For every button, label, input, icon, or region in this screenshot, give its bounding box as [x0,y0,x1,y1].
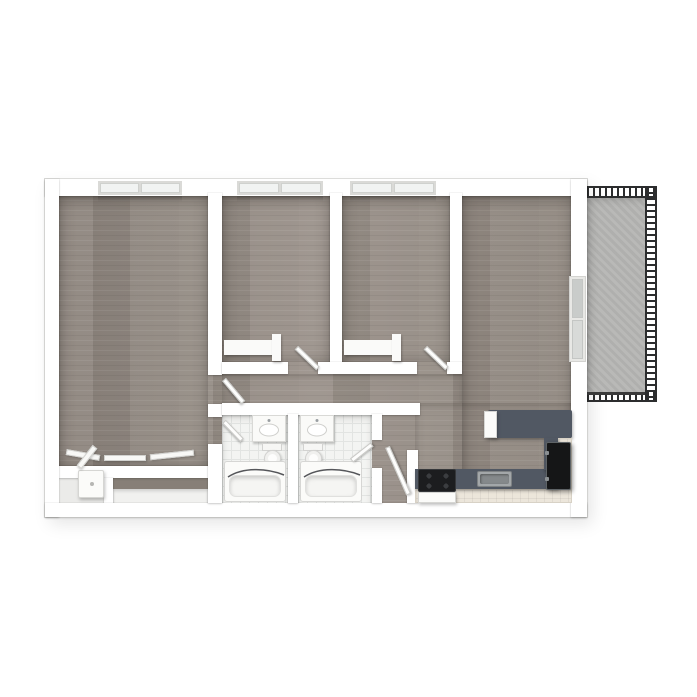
vanity-right [300,415,334,442]
wall-bedrooms-bottom-seg3 [447,362,462,374]
window-pane [141,183,180,193]
wardrobe-door-panel [104,455,146,461]
wall-master-divider-lower [208,444,222,503]
wall-bathroom-right-lower [372,468,382,503]
range [418,469,456,492]
water-heater-valve [90,482,94,486]
window-bedroom-3 [350,181,436,195]
closet-compartment-shelf [113,489,208,503]
wall-left-exterior [45,179,59,517]
refrigerator-hinge [545,451,549,455]
wall-bedroom3-living [450,193,462,362]
window-pane [281,183,321,193]
bathtub-left [224,461,286,502]
closet-shelf-end-panel [272,334,281,361]
vanity-left [252,415,286,442]
closet-shelf-end-panel [392,334,401,361]
floor-plan-render [0,0,697,697]
window-pane [572,279,583,318]
window-pane [352,183,392,193]
wall-master-divider-mid [208,404,222,417]
breakfast-bar-support [484,411,497,438]
balcony-railing-right [645,186,657,402]
sink-basin [259,423,279,436]
wall-bathroom-divider [288,414,298,503]
refrigerator-hinge [545,477,549,481]
window-pane [394,183,434,193]
shower-curtain [301,464,363,480]
wall-bathrooms-top [222,403,420,415]
water-heater [78,470,104,498]
kitchen-sink-basin [480,474,509,484]
breakfast-bar [488,410,572,438]
balcony-floor [587,198,645,395]
range-drawer-front [418,492,456,503]
closet-shelf-bedroom-3 [344,340,398,355]
faucet [268,419,271,422]
kitchen-sink [477,471,512,487]
wall-bedrooms-bottom-seg1 [222,362,288,374]
refrigerator [546,442,571,490]
faucet [316,419,319,422]
closet-divider-wall [104,478,113,503]
bathtub-right [300,461,362,502]
wall-bathroom-right-upper [372,414,382,440]
wall-master-divider-upper [208,193,222,375]
window-living [569,276,586,362]
window-pane [572,320,583,359]
closet-shelf-bedroom-2 [224,340,278,355]
sink-basin [307,423,327,436]
wall-bedroom2-bedroom3 [330,193,342,362]
wall-bottom-exterior [45,503,587,517]
wall-bedrooms-bottom-seg2 [318,362,417,374]
window-pane [239,183,279,193]
window-pane [100,183,139,193]
window-bedroom-2 [237,181,323,195]
window-master [98,181,182,195]
closet-compartment-back [113,478,208,489]
shower-curtain [225,464,287,480]
